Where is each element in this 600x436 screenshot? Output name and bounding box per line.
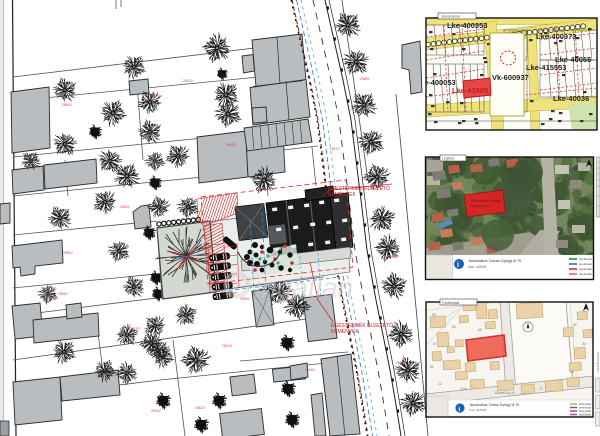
svg-text:e-400053: e-400053 xyxy=(424,78,456,87)
svg-text:György út 70: György út 70 xyxy=(470,204,490,208)
svg-text:12/a: 12/a xyxy=(460,387,467,391)
svg-text:Lke-400353: Lke-400353 xyxy=(447,21,487,30)
svg-text:Lke-40036: Lke-40036 xyxy=(553,94,589,103)
svg-text:Lke-415553: Lke-415553 xyxy=(526,63,566,72)
svg-text:57: 57 xyxy=(433,342,437,346)
svg-text:ÉGÉSTERMÉK ELVEZETŐ: ÉGÉSTERMÉK ELVEZETŐ xyxy=(331,322,393,329)
svg-text:2943/2: 2943/2 xyxy=(151,409,161,413)
svg-text:Lke-400373: Lke-400373 xyxy=(536,32,576,41)
svg-text:2940/2: 2940/2 xyxy=(155,344,165,348)
svg-text:i: i xyxy=(457,262,459,269)
svg-text:2947/2: 2947/2 xyxy=(330,147,340,151)
svg-text:Lke-41505: Lke-41505 xyxy=(452,86,488,95)
svg-text:12: 12 xyxy=(438,382,442,386)
svg-text:61: 61 xyxy=(430,365,434,369)
svg-text:telekhatár: telekhatár xyxy=(579,262,592,266)
svg-text:ingatlan: ingatlan xyxy=(255,272,353,303)
svg-text:telekhatár: telekhatár xyxy=(579,272,592,276)
svg-text:2947/2: 2947/2 xyxy=(130,327,140,331)
svg-text:2941/2: 2941/2 xyxy=(222,344,232,348)
svg-text:Földhivatali: Földhivatali xyxy=(442,301,459,305)
svg-text:44: 44 xyxy=(582,342,586,346)
svg-text:2943/2: 2943/2 xyxy=(226,143,236,147)
svg-text:i: i xyxy=(458,406,460,413)
svg-text:2941/2: 2941/2 xyxy=(183,79,193,83)
svg-text:Jánoshalma, Dózsa György út 70: Jánoshalma, Dózsa György út 70. xyxy=(469,403,520,407)
svg-text:Vk-600937: Vk-600937 xyxy=(492,73,529,82)
svg-text:2945/2: 2945/2 xyxy=(63,251,73,255)
svg-text:2946/2: 2946/2 xyxy=(58,292,68,296)
svg-text:hrsz: 415053: hrsz: 415053 xyxy=(469,408,487,412)
svg-text:Jánoshalma Dózsa: Jánoshalma Dózsa xyxy=(470,199,500,203)
svg-text:2942/2: 2942/2 xyxy=(150,94,160,98)
svg-text:2940/2: 2940/2 xyxy=(388,255,398,259)
svg-text:telekhatár: telekhatár xyxy=(579,413,591,417)
svg-text:63: 63 xyxy=(452,325,456,329)
svg-text:Jánoshalma, Dózsa György út 70: Jánoshalma, Dózsa György út 70. xyxy=(468,259,522,263)
svg-text:42: 42 xyxy=(573,323,577,327)
svg-text:2944/2: 2944/2 xyxy=(305,368,315,372)
svg-text:2942/2: 2942/2 xyxy=(195,406,205,410)
svg-text:telekhatár: telekhatár xyxy=(579,267,592,271)
svg-text:szelvényszám: szelvényszám xyxy=(596,352,600,372)
svg-text:Légifotó: Légifotó xyxy=(442,157,454,161)
svg-text:ÉGÉSTERMÉK ELVEZETŐ: ÉGÉSTERMÉK ELVEZETŐ xyxy=(328,185,390,192)
svg-text:Dózsa Gy. út: Dózsa Gy. út xyxy=(495,391,514,395)
svg-text:KÉMÉNYEK: KÉMÉNYEK xyxy=(331,328,359,335)
svg-text:KÉMÉNYEK: KÉMÉNYEK xyxy=(328,191,356,198)
svg-text:65: 65 xyxy=(478,328,482,332)
svg-text:telekhatár: telekhatár xyxy=(579,257,592,261)
svg-text:46: 46 xyxy=(570,370,574,374)
svg-text:2941/2: 2941/2 xyxy=(396,361,406,365)
svg-text:2946/2: 2946/2 xyxy=(360,77,370,81)
svg-text:9: 9 xyxy=(540,387,542,391)
svg-text:2944/2: 2944/2 xyxy=(120,205,130,209)
svg-text:hrsz: 415053: hrsz: 415053 xyxy=(468,265,487,269)
svg-text:2940/2: 2940/2 xyxy=(62,103,72,107)
svg-text:Jánoshalma: Jánoshalma xyxy=(441,15,460,19)
svg-text:55: 55 xyxy=(432,313,436,317)
